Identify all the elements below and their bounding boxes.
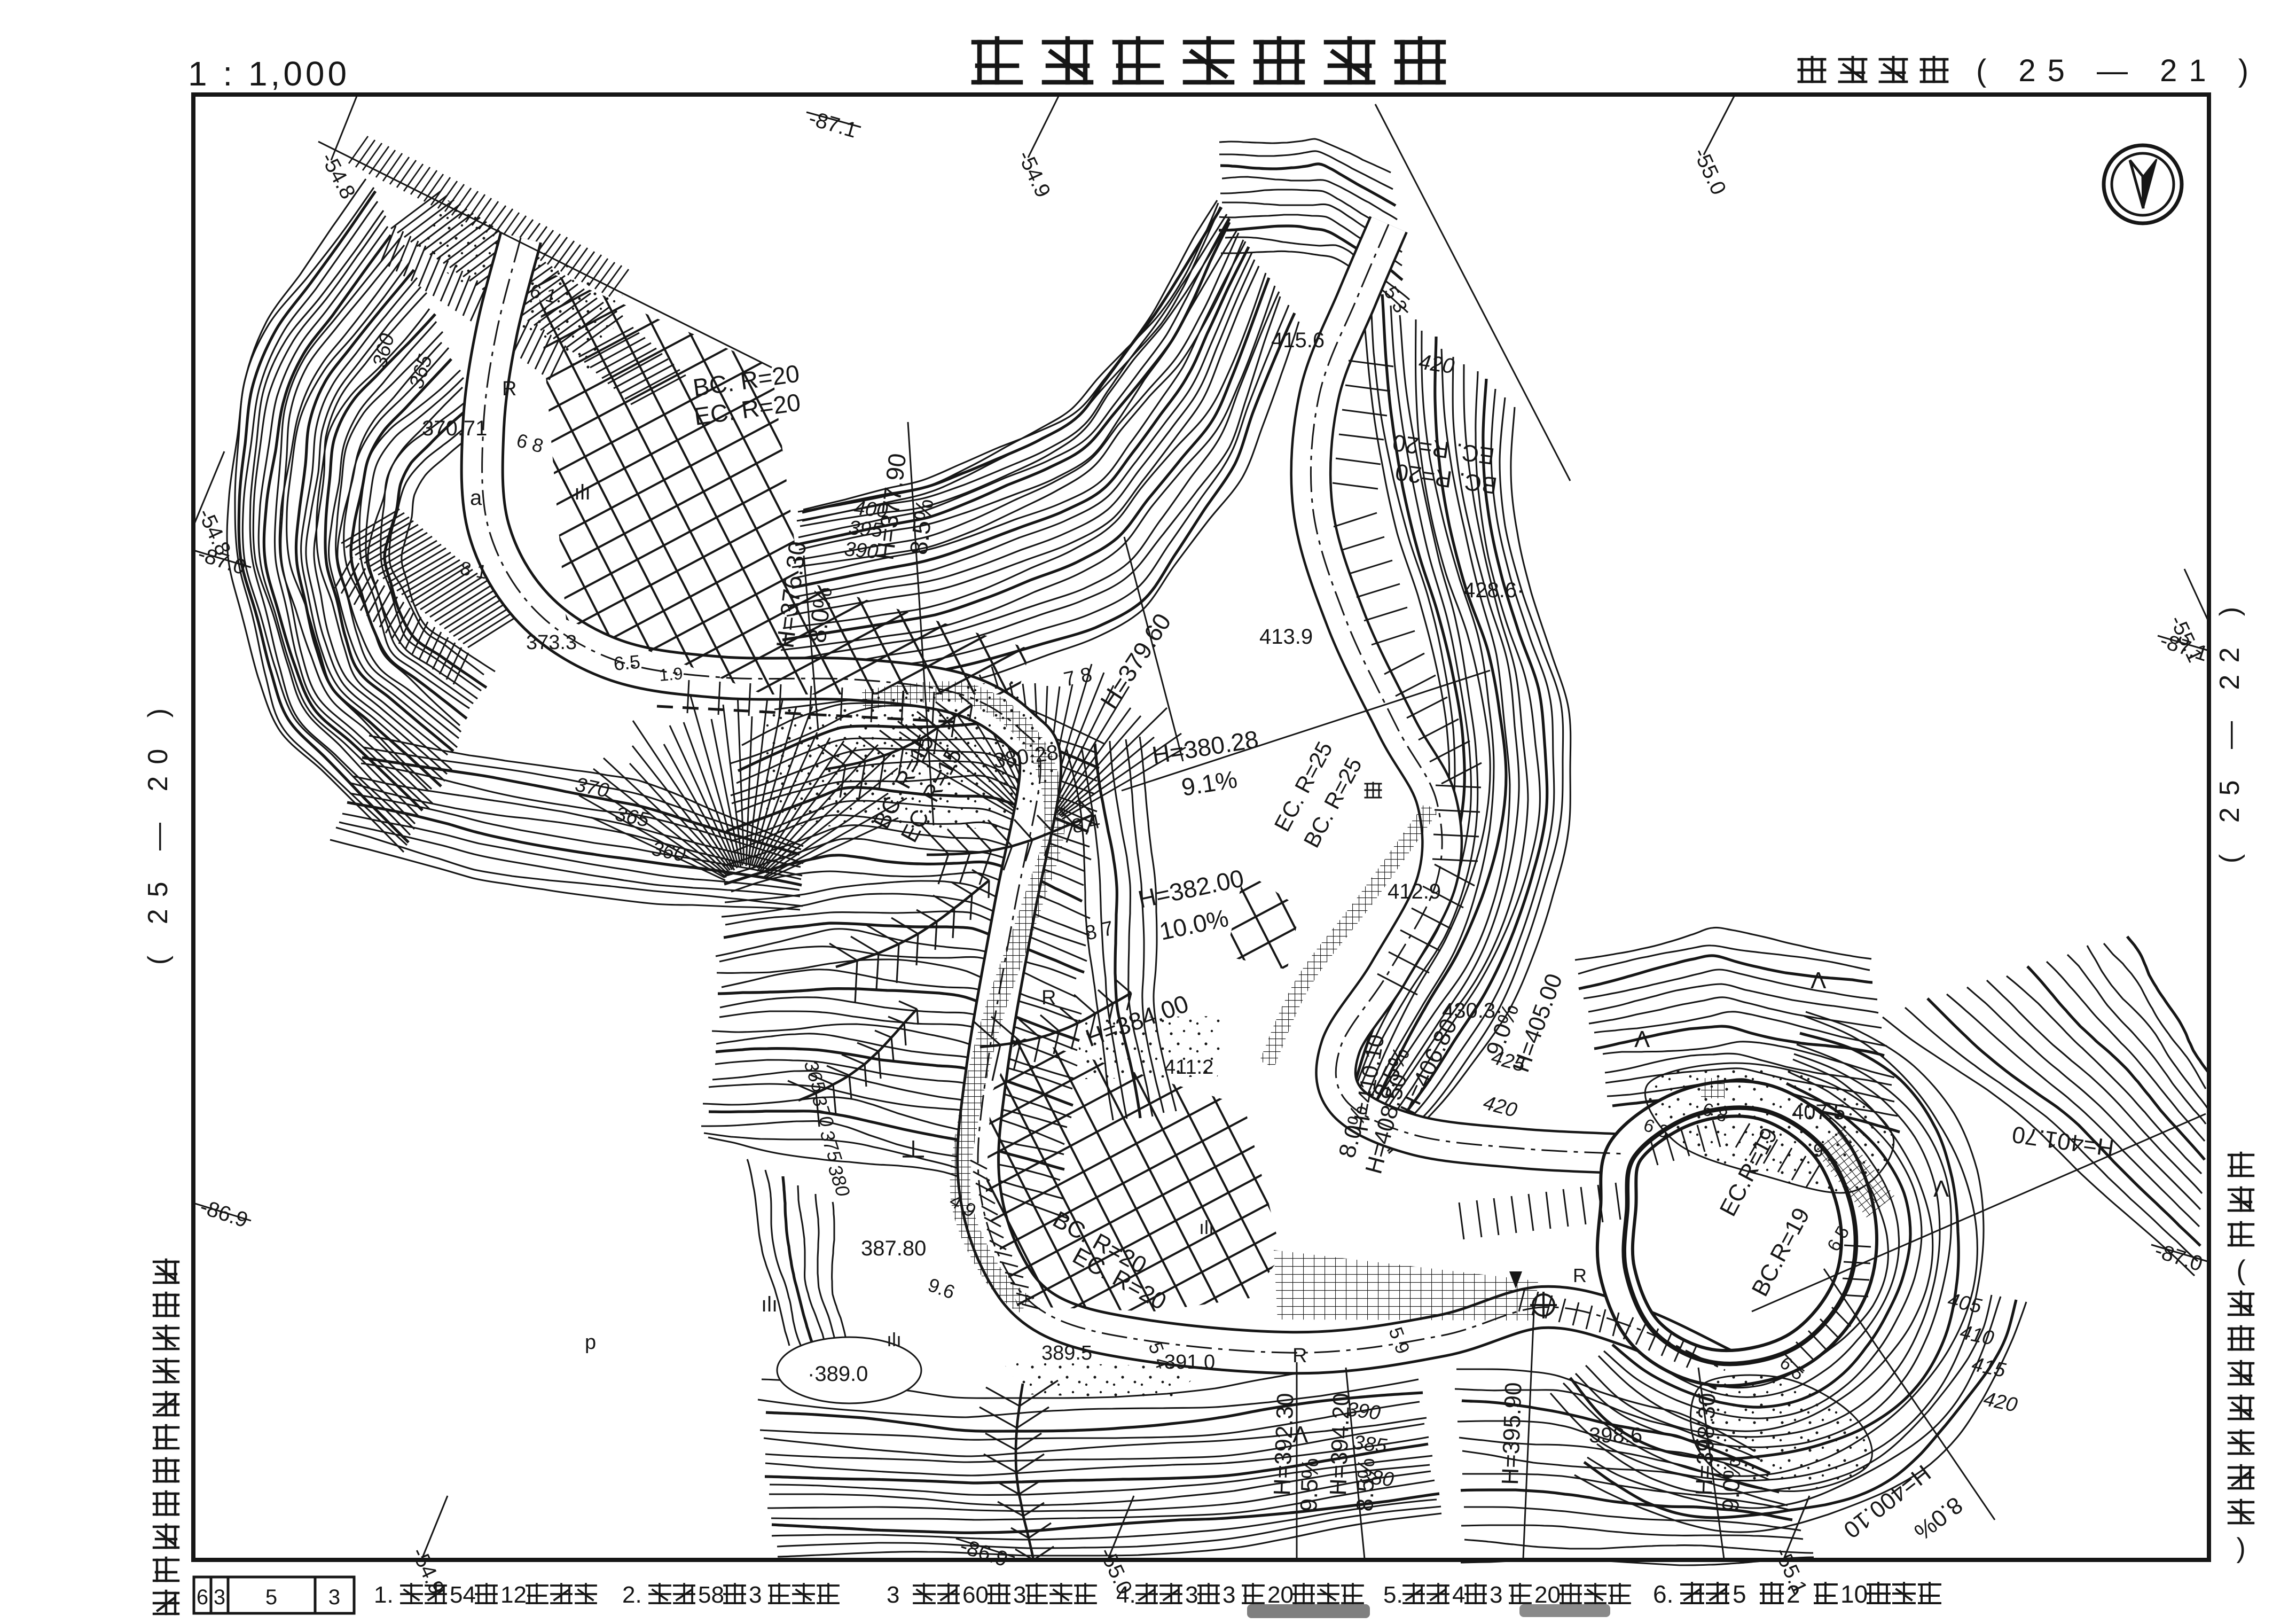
svg-text:Λ: Λ xyxy=(1292,1422,1308,1448)
svg-text:a: a xyxy=(470,486,482,510)
svg-text:20: 20 xyxy=(1267,1582,1294,1608)
svg-text:9.5%: 9.5% xyxy=(1296,1457,1323,1512)
svg-text:( 25 — 21 ): ( 25 — 21 ) xyxy=(1976,53,2260,88)
svg-text:415.6: 415.6 xyxy=(1271,329,1325,352)
svg-text:9: 9 xyxy=(1813,1141,1823,1161)
svg-text:389.5: 389.5 xyxy=(1041,1342,1092,1364)
svg-text:6.: 6. xyxy=(1653,1580,1673,1608)
svg-text:3: 3 xyxy=(1013,1582,1026,1608)
svg-text:12: 12 xyxy=(500,1582,527,1608)
svg-text:R: R xyxy=(1292,1345,1307,1367)
svg-text:8 1: 8 1 xyxy=(459,557,489,583)
svg-text:·389.0: ·389.0 xyxy=(808,1362,868,1386)
svg-text:387.80: 387.80 xyxy=(861,1237,926,1260)
svg-text:3: 3 xyxy=(1185,1582,1198,1608)
svg-text:58: 58 xyxy=(698,1582,724,1608)
svg-text:5: 5 xyxy=(1733,1580,1746,1608)
svg-text:p: p xyxy=(585,1331,596,1354)
svg-text:54: 54 xyxy=(450,1582,476,1608)
svg-text:Λ: Λ xyxy=(1811,967,1827,994)
svg-text:1.9: 1.9 xyxy=(658,663,683,685)
svg-text:Λ: Λ xyxy=(1933,1176,1949,1202)
svg-text:3: 3 xyxy=(887,1582,899,1608)
svg-text:6: 6 xyxy=(197,1586,208,1609)
svg-text:6.5: 6.5 xyxy=(613,651,641,675)
svg-text:ılı: ılı xyxy=(1199,1216,1214,1238)
svg-text:ılı: ılı xyxy=(761,1293,778,1316)
svg-text:ılı: ılı xyxy=(574,481,591,504)
svg-text:5.: 5. xyxy=(1383,1582,1403,1608)
svg-text:2.: 2. xyxy=(622,1582,642,1608)
svg-text:380: 380 xyxy=(1359,1465,1395,1491)
svg-text:3: 3 xyxy=(1490,1582,1502,1608)
svg-text:( 25 — 20 ): ( 25 — 20 ) xyxy=(143,697,174,965)
svg-text:370.71: 370.71 xyxy=(422,417,487,440)
svg-text:385: 385 xyxy=(1352,1431,1389,1458)
svg-text:412.9: 412.9 xyxy=(1388,880,1441,903)
svg-text:5: 5 xyxy=(265,1586,277,1609)
svg-text:20: 20 xyxy=(1534,1582,1561,1608)
svg-text:390: 390 xyxy=(1345,1398,1382,1424)
svg-text:3: 3 xyxy=(214,1586,225,1609)
svg-text:3: 3 xyxy=(749,1582,762,1608)
svg-text:10: 10 xyxy=(1840,1580,1868,1608)
svg-text:3: 3 xyxy=(1223,1582,1235,1608)
svg-text:407.5: 407.5 xyxy=(1792,1100,1845,1124)
svg-text:428.6·: 428.6· xyxy=(1463,579,1524,602)
svg-text:( 25 — 22 ): ( 25 — 22 ) xyxy=(2214,595,2245,863)
svg-text:390: 390 xyxy=(843,538,879,563)
svg-text:H=395.90: H=395.90 xyxy=(1497,1382,1527,1486)
svg-text:): ) xyxy=(2236,1533,2245,1564)
svg-text:Λ: Λ xyxy=(1634,1026,1650,1052)
svg-text:430.3·: 430.3· xyxy=(1442,999,1502,1022)
svg-text:420: 420 xyxy=(1417,350,1456,378)
svg-text:R: R xyxy=(502,378,516,400)
svg-text:1.: 1. xyxy=(374,1582,394,1608)
svg-text:411.2: 411.2 xyxy=(1164,1056,1213,1079)
svg-text:3: 3 xyxy=(328,1586,340,1609)
svg-text:4: 4 xyxy=(1452,1582,1465,1608)
svg-text:1 : 1,000: 1 : 1,000 xyxy=(188,54,350,93)
svg-text:60: 60 xyxy=(962,1582,989,1608)
svg-text:9.0%: 9.0% xyxy=(1718,1457,1745,1512)
svg-text:(: ( xyxy=(2236,1255,2246,1286)
svg-text:R: R xyxy=(1573,1264,1587,1286)
svg-text:H=398.30: H=398.30 xyxy=(1691,1393,1721,1496)
svg-text:ılı: ılı xyxy=(887,1329,902,1350)
svg-text:R: R xyxy=(1041,987,1056,1009)
svg-text:373.3: 373.3 xyxy=(526,631,577,654)
svg-text:413.9: 413.9 xyxy=(1259,625,1313,649)
svg-text:398.6: 398.6 xyxy=(1589,1424,1642,1447)
